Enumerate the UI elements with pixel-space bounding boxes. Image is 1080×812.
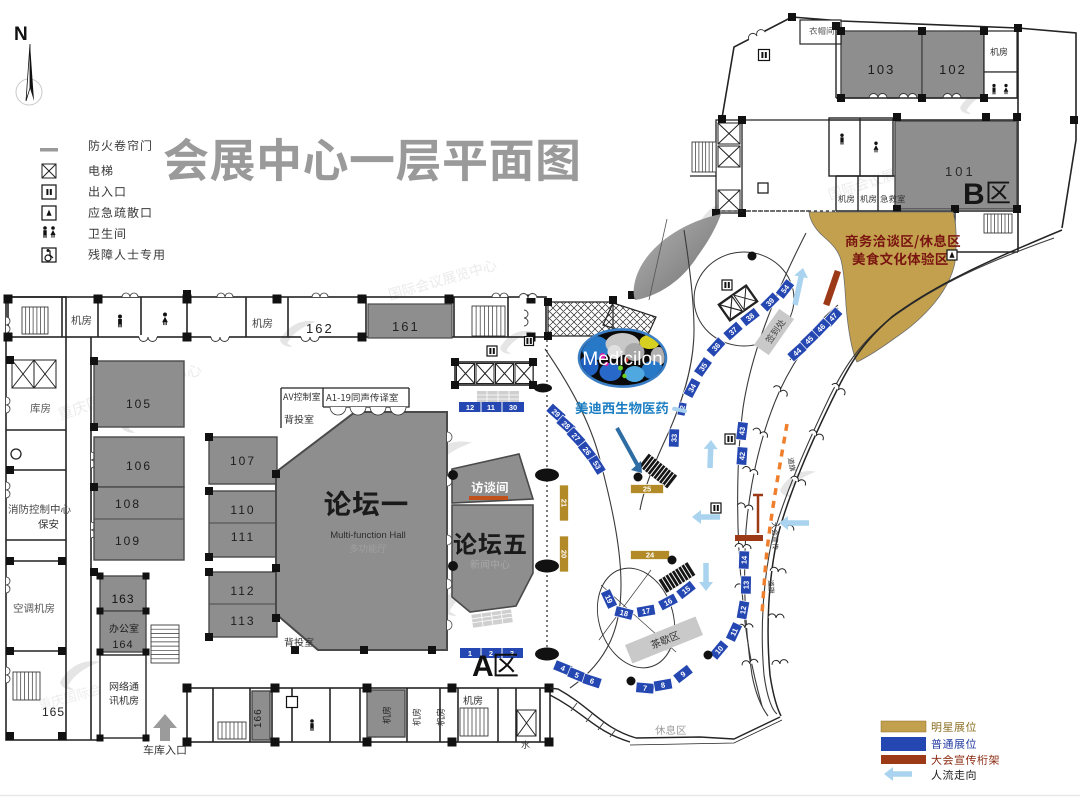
svg-text:13: 13: [742, 581, 751, 589]
svg-text:24: 24: [646, 551, 655, 560]
svg-text:102: 102: [939, 62, 967, 77]
svg-text:101: 101: [945, 164, 976, 179]
svg-text:Multi-function Hall: Multi-function Hall: [330, 530, 406, 541]
svg-text:A: A: [472, 650, 494, 683]
svg-text:110: 110: [230, 503, 255, 517]
svg-text:N: N: [14, 24, 28, 45]
svg-text:106: 106: [126, 459, 152, 473]
svg-text:166: 166: [253, 708, 264, 728]
svg-text:163: 163: [111, 592, 134, 606]
svg-text:103: 103: [868, 62, 896, 77]
svg-text:12: 12: [738, 605, 748, 615]
svg-text:42: 42: [737, 452, 747, 461]
svg-text:3: 3: [510, 649, 514, 658]
svg-text:162: 162: [306, 321, 334, 336]
svg-text:113: 113: [230, 614, 255, 628]
svg-text:164: 164: [112, 639, 133, 651]
svg-text:112: 112: [230, 584, 255, 598]
svg-text:7: 7: [643, 684, 648, 693]
svg-text:20: 20: [559, 550, 568, 558]
svg-text:109: 109: [115, 534, 141, 548]
svg-text:107: 107: [230, 454, 256, 468]
svg-text:165: 165: [42, 705, 65, 719]
svg-text:108: 108: [115, 497, 141, 511]
svg-text:30: 30: [509, 403, 517, 412]
svg-text:33: 33: [670, 434, 679, 443]
svg-text:Medicilon: Medicilon: [582, 349, 662, 370]
svg-text:21: 21: [559, 499, 568, 507]
svg-text:161: 161: [392, 319, 420, 334]
svg-text:12: 12: [466, 403, 474, 412]
svg-text:111: 111: [231, 530, 255, 544]
svg-text:14: 14: [740, 555, 749, 564]
svg-text:B: B: [963, 178, 985, 211]
svg-text:11: 11: [487, 403, 495, 412]
svg-text:17: 17: [641, 606, 651, 616]
svg-text:43: 43: [737, 426, 747, 435]
svg-text:25: 25: [643, 485, 651, 494]
svg-text:105: 105: [126, 397, 152, 411]
